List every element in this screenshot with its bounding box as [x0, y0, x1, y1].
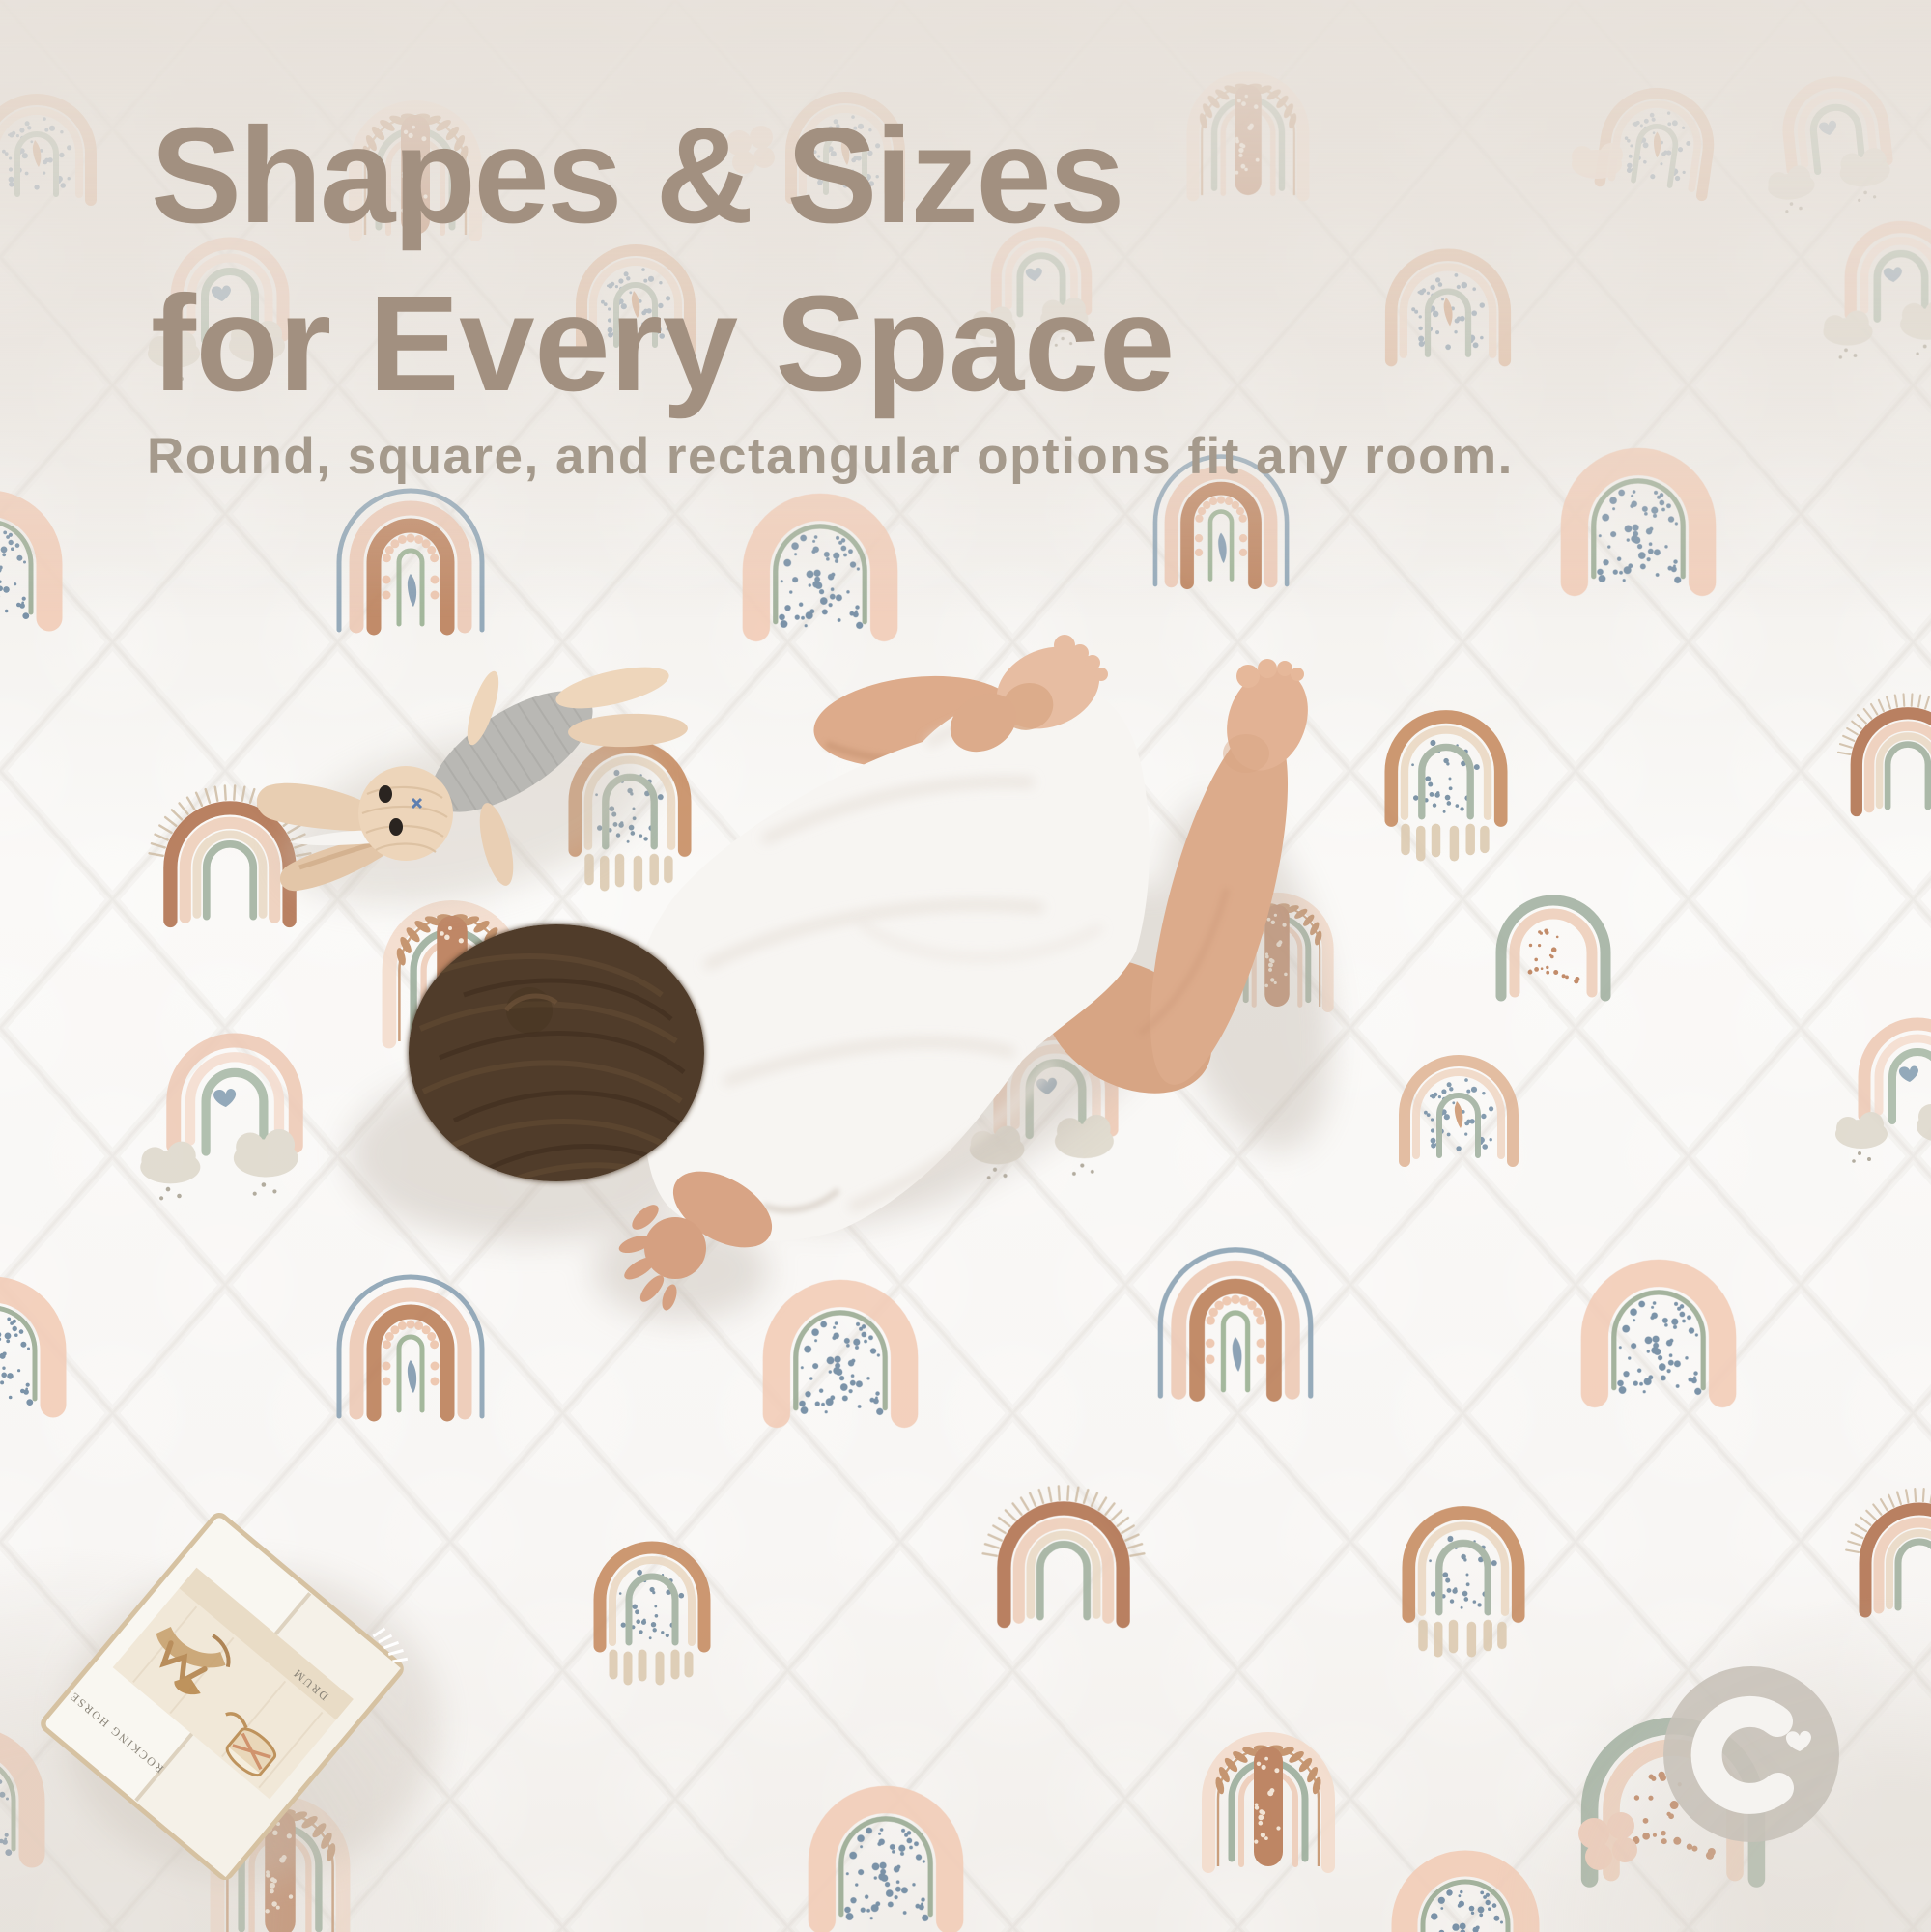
svg-text:for Every Space: for Every Space: [151, 267, 1175, 419]
svg-text:Shapes & Sizes: Shapes & Sizes: [151, 99, 1122, 251]
svg-text:Round, square, and rectangular: Round, square, and rectangular options f…: [147, 428, 1514, 485]
